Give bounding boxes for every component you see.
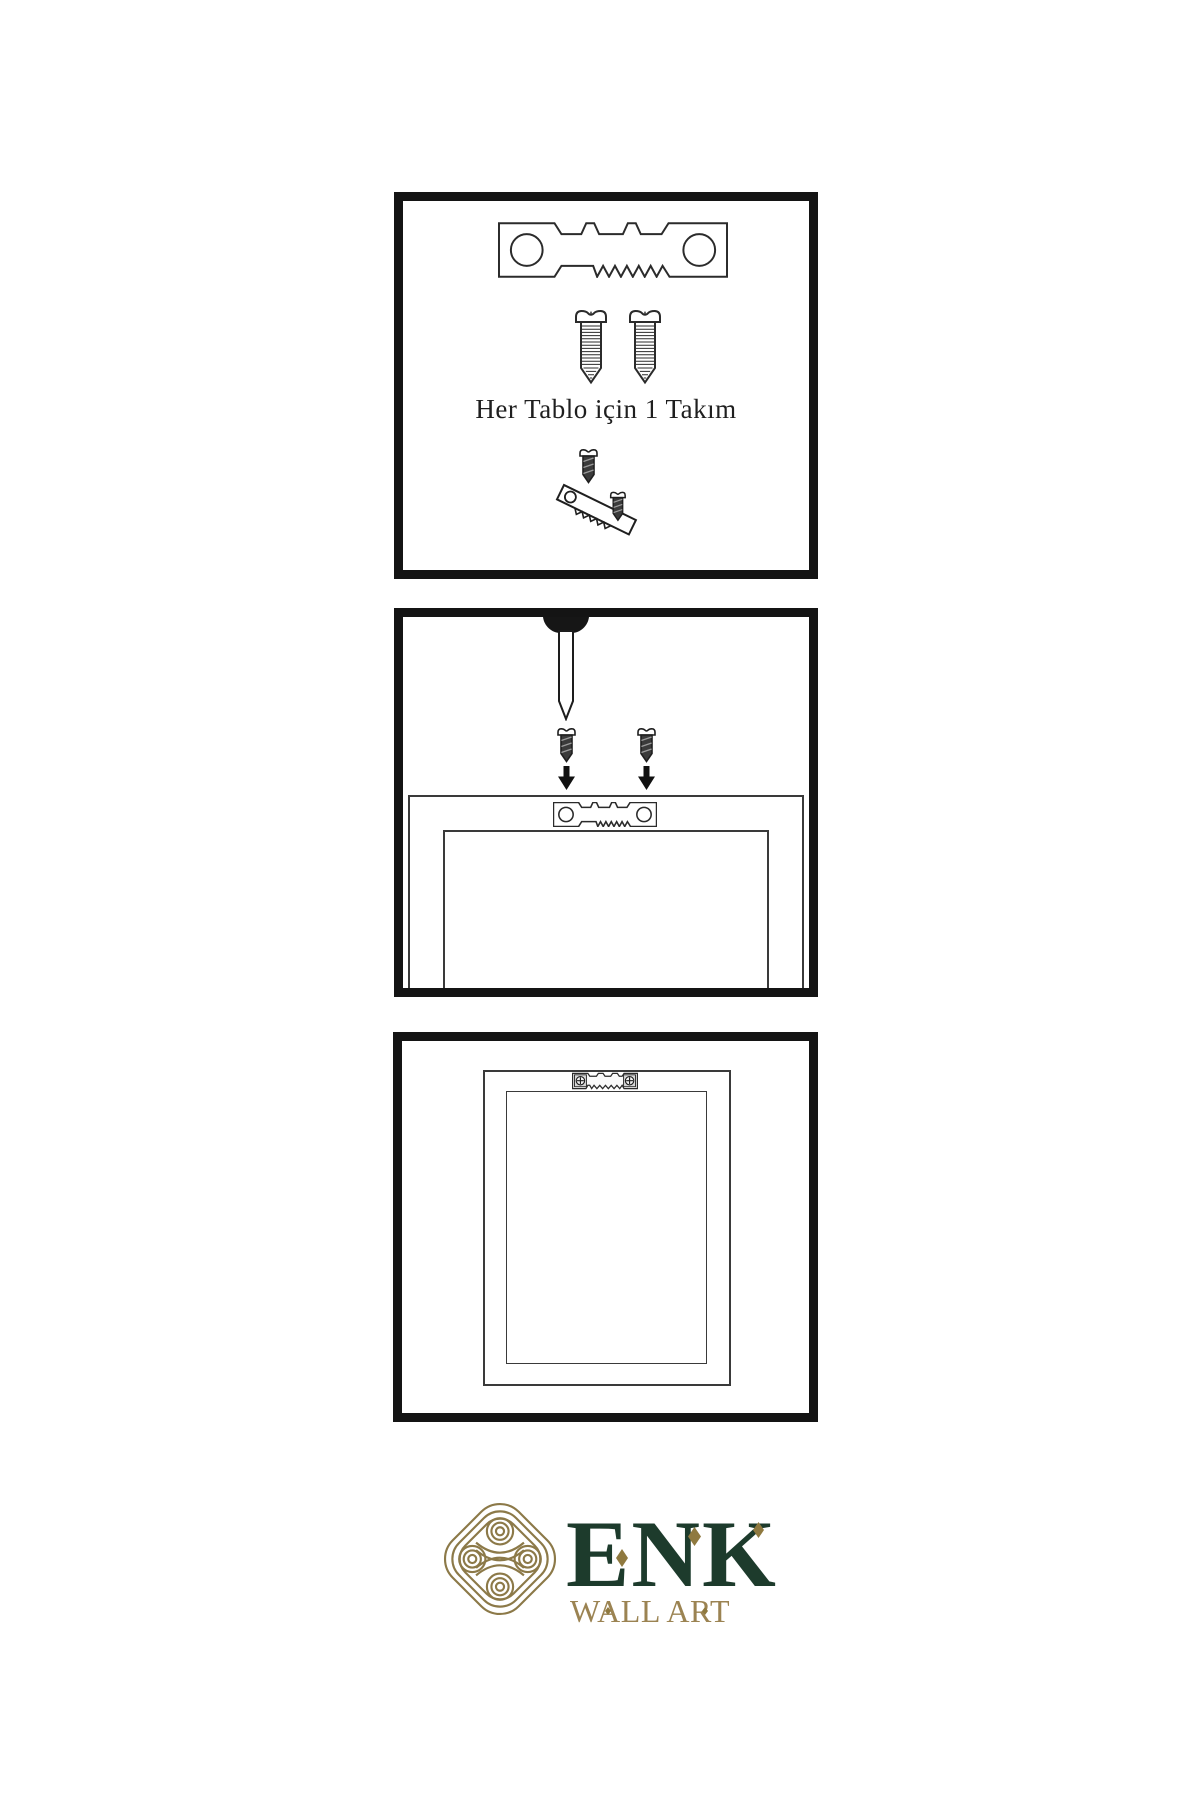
mounted-sawtooth-hanger-icon [571,1071,639,1091]
wall-nail-icon [543,617,589,721]
screw-into-hanger-icon [548,445,658,541]
kit-panel: Her Tablo için 1 Takım [394,192,818,579]
sawtooth-hanger-icon [553,802,657,827]
hang-panel [393,1032,818,1422]
screw-icon [573,307,609,385]
kit-caption: Her Tablo için 1 Takım [403,394,809,425]
hanging-kit-instruction-sheet: Her Tablo için 1 Takım [0,0,1200,1800]
screw-icon [636,726,657,764]
screw-icon [627,307,663,385]
nail-panel [394,608,818,997]
frame-back-inner-edge [443,830,769,997]
sawtooth-hanger-icon [498,222,728,278]
brand-name: ENK [566,1507,778,1602]
knot-logo-icon [437,1491,563,1627]
down-arrow-icon [558,766,575,790]
screw-icon [556,726,577,764]
framed-picture-inner-edge [506,1091,707,1364]
down-arrow-icon [638,766,655,790]
